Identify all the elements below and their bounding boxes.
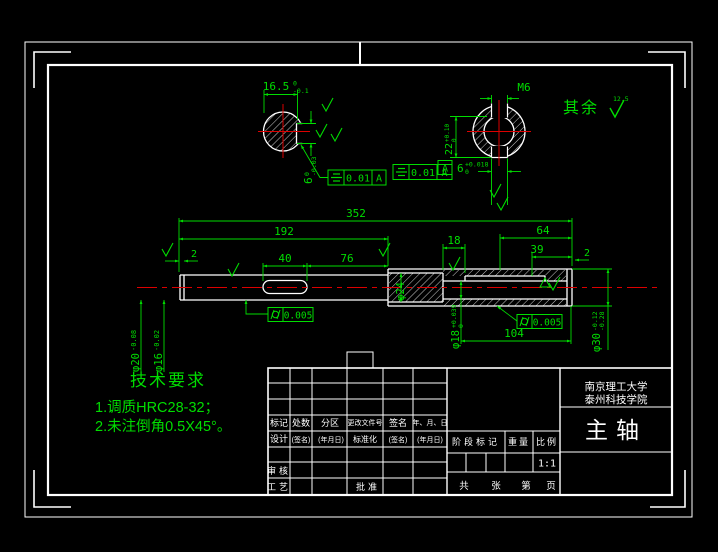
tb-col-zone: 分区: [321, 418, 339, 428]
dim-wall: 18: [447, 234, 460, 247]
cylindricity-icon: [520, 317, 529, 326]
dim-overall: 352: [346, 207, 366, 220]
svg-text:0: 0: [457, 324, 465, 328]
tb-stage-mark: 阶段标记: [452, 436, 500, 447]
dim-slot-to-step: 76: [340, 252, 353, 265]
surface-finish-note: 其余 12.5: [563, 95, 629, 117]
tb-part-title: 主轴: [585, 417, 647, 443]
tb-sheets-total: 共: [459, 481, 469, 492]
tech-title: 技术要求: [130, 371, 206, 390]
dim-key-flat-value: 16.5: [263, 80, 290, 93]
rest-label: 其余: [563, 98, 599, 117]
tb-date-placeholder-2: (年月日): [417, 435, 443, 444]
tech-requirements: 技术要求 1.调质HRC28-32； 2.未注倒角0.5X45°。: [95, 371, 231, 435]
dim-bore-a: 64: [536, 224, 550, 237]
roughness-icon: [316, 124, 327, 137]
tb-col-date: 年、月、日: [413, 418, 448, 427]
main-view-dimensions: 352 192 40 76 18 64 39 104 2 2 φ24 φ18 +…: [130, 207, 612, 372]
roughness-icon: [497, 197, 508, 210]
tb-col-change-doc: 更改文件号: [348, 418, 383, 427]
dim-dia-tip: φ16 -0.02: [153, 330, 165, 372]
gdt-datum: A: [376, 174, 382, 185]
dim-dia-right: φ30 -0.12 -0.28: [591, 311, 606, 352]
symmetry-icon: [331, 174, 342, 181]
dim-dia-core: φ24: [395, 282, 407, 301]
tb-org-line-2: 泰州科技学院: [585, 393, 648, 406]
tb-process: 工艺: [267, 482, 291, 492]
gdt-frame-cylindricity-2: 0.005: [497, 306, 562, 329]
tech-line-2: 2.未注倒角0.5X45°。: [95, 418, 231, 435]
gdt-value: 0.01: [346, 174, 370, 185]
rest-value: 12.5: [613, 95, 629, 103]
gdt-frame-cylindricity-1: 0.005: [246, 300, 313, 322]
tb-org-line-1: 南京理工大学: [585, 380, 648, 393]
tb-col-count: 处数: [292, 417, 310, 428]
tech-line-1: 1.调质HRC28-32；: [95, 399, 219, 416]
svg-text:φ24: φ24: [395, 282, 407, 301]
svg-text:6: 6: [302, 177, 315, 184]
dim-left-len: 192: [274, 225, 294, 238]
tb-sheets-unit: 张: [491, 481, 501, 492]
svg-text:-0.03: -0.03: [310, 156, 318, 176]
tb-sign-placeholder: (签名): [292, 435, 311, 444]
tb-col-mark: 标记: [270, 417, 288, 428]
tb-page-no: 第: [521, 480, 531, 492]
dim-hub-key-sub: 0: [465, 168, 469, 176]
tb-review: 审核: [267, 465, 291, 476]
title-block-tab: [347, 352, 373, 368]
cad-viewport: 16.5 0 -0.1 6 0 -0.03 0.01 A: [0, 0, 718, 552]
tb-date-placeholder: (年月日): [318, 435, 344, 444]
tb-standardization: 标准化: [353, 434, 377, 444]
roughness-icon: [331, 128, 342, 141]
dim-dia-body: φ20 -0.08: [130, 330, 142, 372]
tb-scale-value: 1:1: [538, 459, 556, 470]
corner-mark-top-left: [34, 52, 71, 88]
datum-label: A: [442, 164, 448, 175]
tb-col-sign: 签名: [389, 417, 407, 428]
tb-page-unit: 页: [546, 481, 556, 492]
svg-text:0: 0: [451, 138, 458, 142]
gdt-value: 0.005: [533, 318, 562, 329]
symmetry-icon: [396, 169, 407, 176]
gdt-value: 0.005: [284, 311, 313, 322]
gdt-value: 0.01: [411, 168, 435, 179]
tb-design: 设计: [270, 433, 288, 444]
roughness-icon: [228, 263, 239, 276]
dim-hub-key-value: 6: [457, 162, 464, 175]
dim-thread-value: M6: [517, 81, 530, 94]
svg-text:-0.02: -0.02: [153, 330, 161, 351]
svg-text:22: 22: [444, 143, 455, 155]
tb-sign-placeholder-2: (签名): [389, 435, 408, 444]
svg-text:φ20: φ20: [130, 353, 142, 372]
dim-bore-b: 39: [530, 243, 543, 256]
roughness-icon: [322, 98, 333, 111]
dim-key-flat-sub: -0.1: [293, 87, 309, 95]
tb-weight: 重量: [508, 436, 530, 447]
section-view-left: 16.5 0 -0.1 6 0 -0.03: [258, 80, 342, 185]
tb-scale-label: 比例: [536, 436, 558, 447]
roughness-icon: [162, 243, 173, 256]
corner-mark-bottom-right: [650, 470, 685, 507]
svg-text:φ18: φ18: [450, 330, 462, 349]
corner-mark-top-right: [648, 52, 685, 88]
svg-text:-0.08: -0.08: [130, 330, 138, 351]
svg-text:-0.28: -0.28: [598, 311, 606, 331]
cad-drawing: 16.5 0 -0.1 6 0 -0.03 0.01 A: [0, 0, 718, 552]
svg-text:φ16: φ16: [153, 353, 165, 372]
dim-slot-len: 40: [278, 252, 291, 265]
corner-mark-bottom-left: [34, 470, 71, 507]
dim-dia-bore: φ18 +0.039 0: [450, 304, 465, 349]
cylindricity-icon: [271, 310, 280, 319]
tb-approve: 批准: [356, 481, 380, 492]
dim-chamfer-right: 2: [584, 248, 590, 259]
svg-text:+0.10: +0.10: [444, 124, 451, 142]
section-view-right: M6 22 +0.10 0 6 +0.018 0 A: [438, 81, 531, 210]
svg-text:φ30: φ30: [591, 333, 603, 352]
title-block: 标记 处数 分区 更改文件号 签名 年、月、日 设计 (签名) (年月日) 标准…: [267, 352, 672, 495]
dim-groove-left: 2: [191, 249, 197, 260]
roughness-icon: [449, 257, 460, 270]
